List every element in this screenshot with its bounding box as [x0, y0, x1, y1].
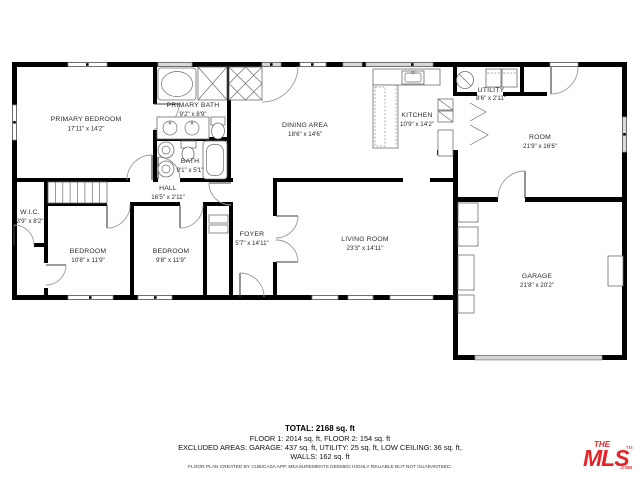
- stairs: [48, 182, 107, 203]
- exterior-walls: [12, 62, 627, 360]
- room-dims-garage: 21'8" x 20'2": [520, 282, 554, 289]
- summary-walls: WALLS: 162 sq. ft: [290, 452, 349, 461]
- room-label-utility: UTILITY: [478, 87, 505, 94]
- room-dims-primary-bedroom: 17'11" x 14'2": [68, 126, 105, 133]
- room-dims-hall: 16'5" x 2'11": [151, 194, 184, 201]
- utility-fixtures: [457, 69, 518, 89]
- room-dims-dining-area: 18'6" x 14'6": [288, 131, 322, 138]
- room-label-bedroom-2: BEDROOM: [153, 248, 190, 255]
- dining-lattice: [229, 67, 262, 100]
- bathtub-icon: [158, 68, 196, 100]
- summary-floors: FLOOR 1: 2014 sq. ft, FLOOR 2: 154 sq. f…: [250, 434, 390, 443]
- summary-excluded: EXCLUDED AREAS: GARAGE: 437 sq. ft, UTIL…: [178, 443, 462, 452]
- sink-icon: [158, 142, 174, 158]
- room-label-hall: HALL: [159, 185, 177, 192]
- room-label-dining-area: DINING AREA: [282, 122, 328, 129]
- the-mls-logo: THE MLS .COM TM: [583, 440, 633, 471]
- logo-trademark-text: TM: [626, 445, 633, 450]
- room-dims-bath: 9'1" x 5'1": [176, 167, 203, 174]
- room-dims-bedroom-1: 10'8" x 11'9": [71, 257, 104, 264]
- room-label-primary-bedroom: PRIMARY BEDROOM: [51, 116, 122, 123]
- room-label-bath: BATH: [181, 158, 199, 165]
- room-dims-utility: 8'6" x 2'11": [476, 95, 506, 102]
- closet-shelves: [209, 215, 228, 233]
- room-label-bedroom-1: BEDROOM: [70, 248, 107, 255]
- area-summary: TOTAL: 2168 sq. ft FLOOR 1: 2014 sq. ft,…: [178, 424, 462, 470]
- logo-com-text: .COM: [620, 465, 632, 470]
- room-label-living-room: LIVING ROOM: [341, 236, 389, 243]
- room-dims-living-room: 23'3" x 14'11": [347, 245, 384, 252]
- windows: [13, 63, 627, 359]
- garage-shelves: [458, 203, 623, 313]
- fridge-icon: [438, 130, 453, 156]
- room-dims-bedroom-2: 9'8" x 11'9": [156, 257, 186, 264]
- room-label-wic: W.I.C.: [20, 209, 40, 216]
- dryer-icon: [486, 69, 501, 87]
- garage-door: [475, 356, 602, 360]
- vanity-icon: [157, 117, 209, 139]
- floor-plan-page: PRIMARY BEDROOM 17'11" x 14'2" PRIMARY B…: [0, 0, 640, 480]
- room-label-foyer: FOYER: [240, 231, 264, 238]
- room-dims-primary-bath: 9'2" x 8'9": [179, 111, 206, 118]
- room-dims-kitchen: 10'9" x 14'2": [400, 121, 434, 128]
- room-label-room: ROOM: [529, 134, 551, 141]
- room-label-garage: GARAGE: [522, 273, 553, 280]
- summary-total: TOTAL: 2168 sq. ft: [285, 424, 355, 433]
- room-label-kitchen: KITCHEN: [401, 112, 432, 119]
- room-dims-foyer: 5'7" x 14'11": [235, 240, 268, 247]
- room-dims-wic: 3'9" x 8'2": [16, 218, 43, 225]
- room-dims-room: 21'9" x 16'6": [523, 143, 557, 150]
- room-label-primary-bath: PRIMARY BATH: [167, 102, 220, 109]
- floor-plan-drawing: PRIMARY BEDROOM 17'11" x 14'2" PRIMARY B…: [0, 0, 640, 480]
- summary-disclaimer: FLOOR PLAN CREATED BY CUBICASA APP. MEAS…: [188, 464, 452, 470]
